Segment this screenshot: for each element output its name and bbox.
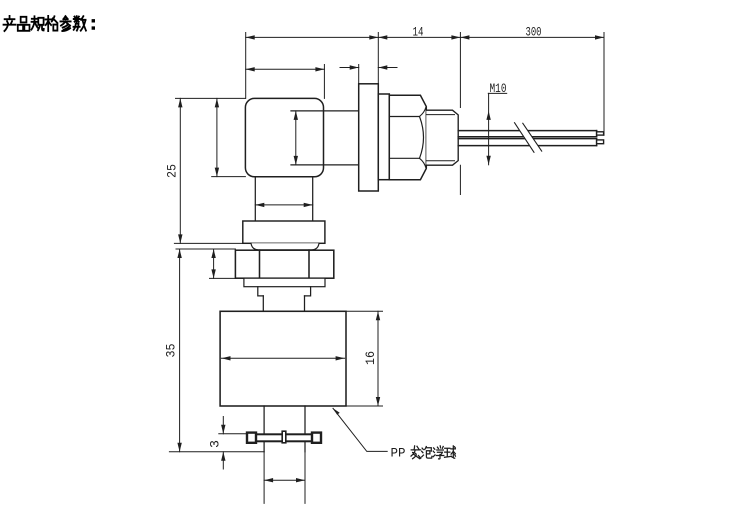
- svg-text:14: 14: [413, 25, 424, 40]
- svg-text:PP: PP: [391, 446, 406, 461]
- svg-text:25: 25: [165, 164, 180, 178]
- svg-text:300: 300: [526, 25, 542, 40]
- svg-text:16: 16: [363, 351, 378, 365]
- svg-text:35: 35: [164, 344, 179, 358]
- svg-text:3: 3: [208, 440, 223, 448]
